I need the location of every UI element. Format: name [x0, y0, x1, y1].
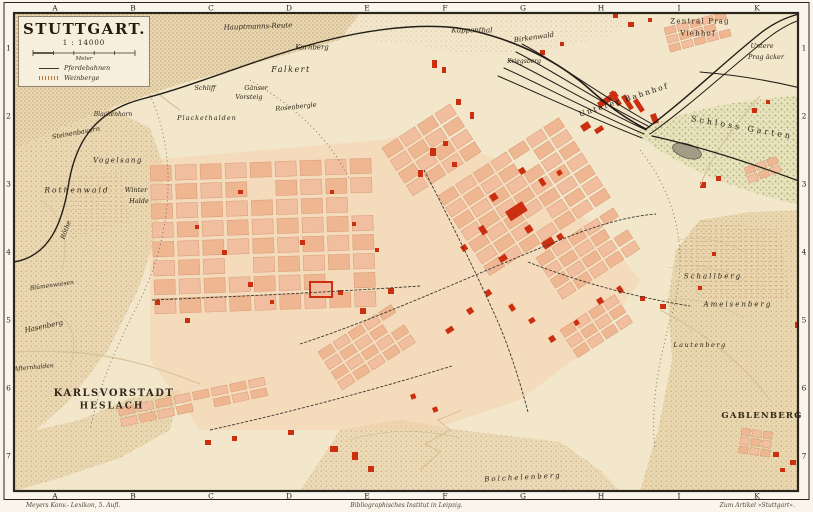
map-title: STUTTGART.	[23, 20, 145, 38]
vineyard-hatch-symbol	[39, 76, 59, 80]
legend-label: Weinberge	[64, 74, 99, 82]
credit-publisher: Meyers Konv.- Lexikon, 5. Aufl.	[26, 502, 120, 509]
legend-item-pferdebahnen: Pferdebahnen	[23, 64, 145, 72]
tram-line-symbol	[39, 68, 59, 69]
credit-article: Zum Artikel »Stuttgart«.	[720, 502, 795, 509]
credit-institute: Bibliographisches Institut in Leipzig.	[350, 502, 462, 509]
map-legend-box: STUTTGART. 1 : 14000 Meter Pferdebahnen …	[18, 16, 150, 87]
scale-bar	[29, 49, 139, 56]
scale-unit-label: Meter	[23, 56, 145, 62]
map-scale-ratio: 1 : 14000	[23, 39, 145, 47]
legend-item-weinberge: Weinberge	[23, 74, 145, 82]
map-credits: Meyers Konv.- Lexikon, 5. Aufl. Bibliogr…	[0, 501, 813, 512]
legend-label: Pferdebahnen	[64, 64, 110, 72]
stuttgart-map-page: Hauptmanns-ReuteKornbergFalkertKuppentha…	[0, 0, 813, 512]
